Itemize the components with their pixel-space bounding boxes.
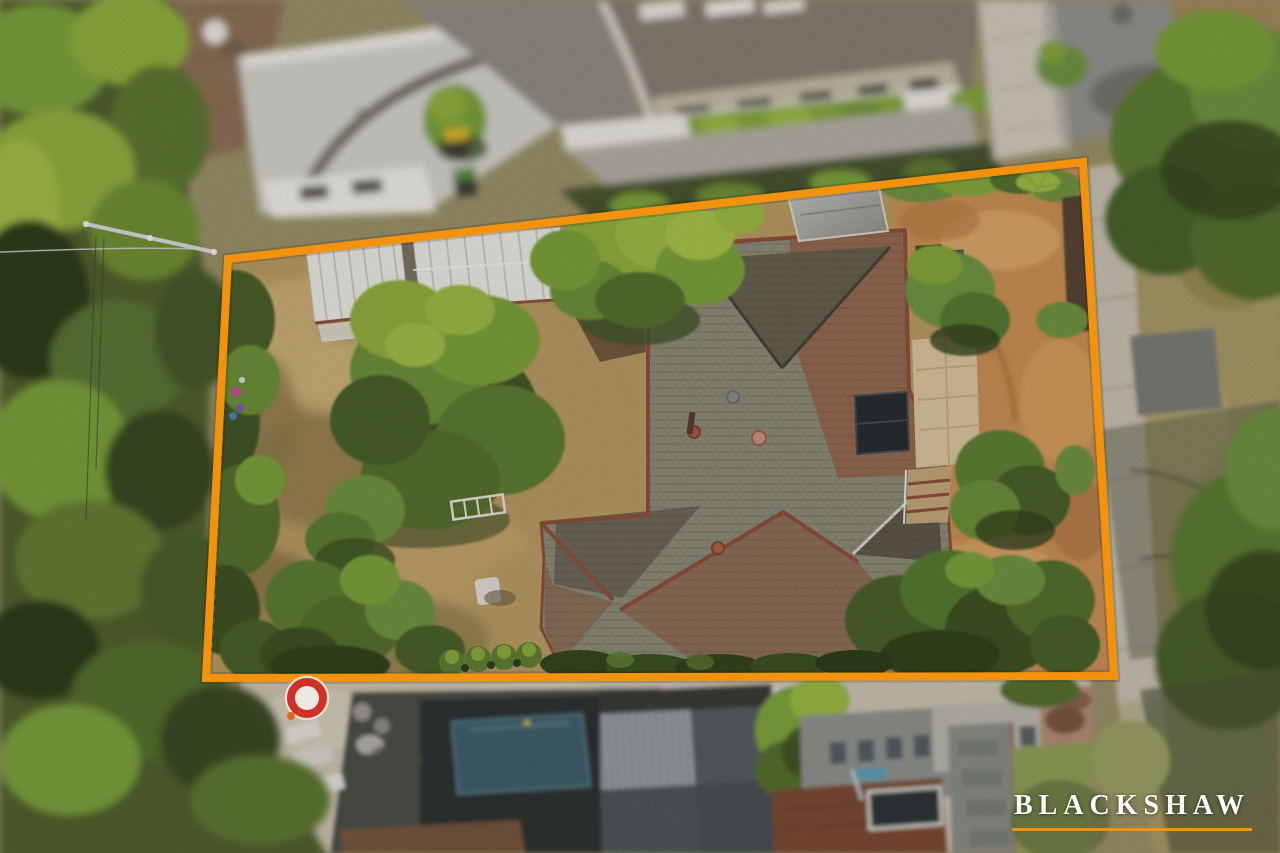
agency-watermark-text: BLACKSHAW: [1012, 790, 1252, 831]
aerial-scene: [0, 0, 1280, 853]
ring-red: [291, 682, 323, 714]
photo-grain: [0, 0, 1280, 853]
agency-watermark: BLACKSHAW: [1012, 790, 1252, 831]
traffic-cone: [287, 712, 295, 720]
aerial-photo: BLACKSHAW: [0, 0, 1280, 853]
red-ring-object: [286, 677, 328, 720]
